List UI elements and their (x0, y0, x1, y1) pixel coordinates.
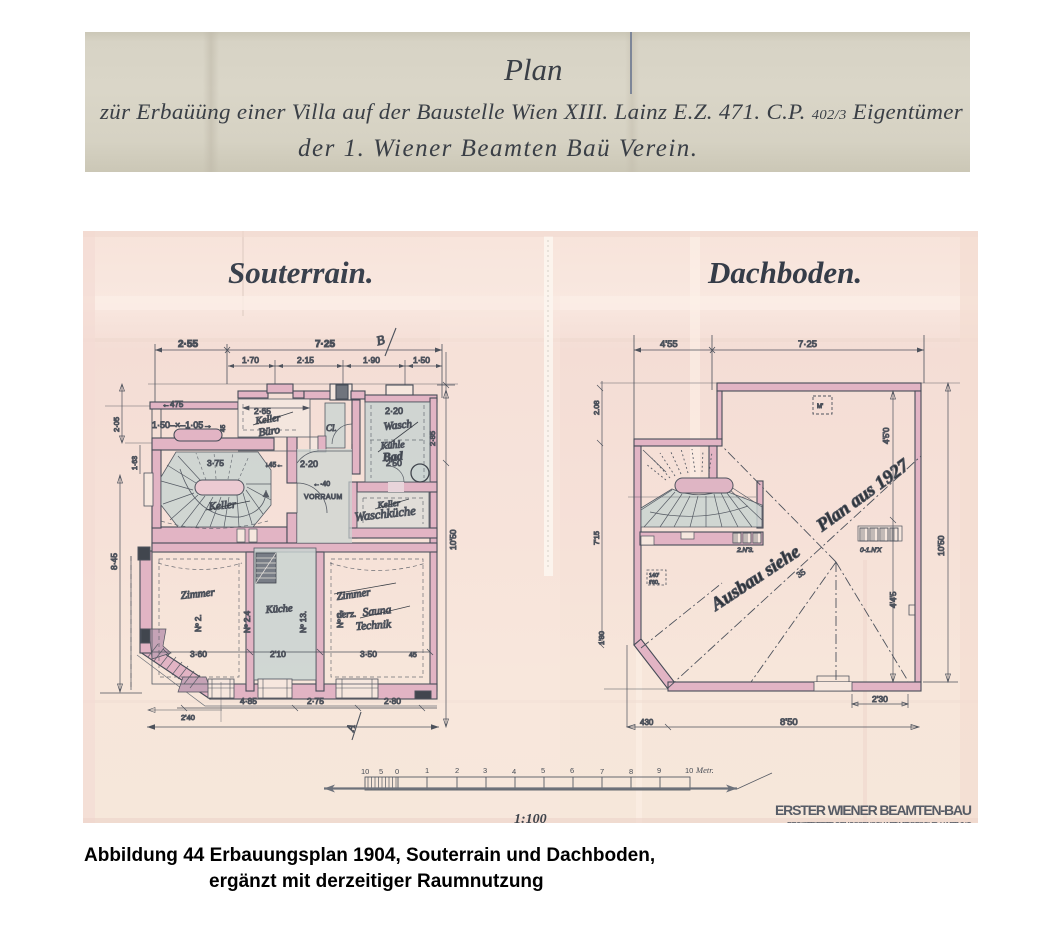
svg-text:Nº 13.: Nº 13. (299, 611, 308, 633)
svg-text:Nº 2.: Nº 2. (194, 614, 203, 632)
svg-text:1:100: 1:100 (514, 812, 547, 823)
svg-text:ℓ'60.: ℓ'60. (649, 580, 660, 586)
svg-text:1·63: 1·63 (132, 456, 139, 470)
svg-text:Souterrain.: Souterrain. (228, 255, 374, 290)
svg-text:3·75: 3·75 (207, 458, 224, 468)
svg-text:6: 6 (570, 766, 574, 775)
svg-text:↓45←: ↓45← (265, 462, 283, 469)
svg-text:4'55: 4'55 (660, 339, 678, 350)
svg-text:8: 8 (629, 767, 633, 776)
svg-text:Technik: Technik (355, 618, 392, 632)
svg-text:4'5'0: 4'5'0 (882, 427, 891, 444)
svg-text:10: 10 (685, 766, 693, 775)
svg-text:45: 45 (220, 424, 227, 432)
svg-text:3·60: 3·60 (190, 649, 207, 659)
svg-text:Keller: Keller (207, 499, 237, 514)
svg-text:Dachboden.: Dachboden. (707, 255, 862, 290)
svg-text:2.N'3.: 2.N'3. (736, 547, 754, 554)
svg-text:4'4'5: 4'4'5 (889, 591, 898, 608)
svg-text:1·90: 1·90 (363, 355, 380, 365)
svg-text:5: 5 (541, 766, 545, 775)
svg-text:7'15: 7'15 (592, 531, 601, 545)
svg-text:2.08: 2.08 (592, 400, 601, 415)
svg-text:3: 3 (483, 766, 487, 775)
svg-text:M': M' (817, 404, 823, 410)
svg-text:45: 45 (409, 652, 417, 659)
svg-text:1·50: 1·50 (413, 355, 430, 365)
svg-text:7·25: 7·25 (315, 339, 335, 350)
svg-text:ERSTER WIENER BEAMTEN-BAU: ERSTER WIENER BEAMTEN-BAU (775, 802, 972, 818)
svg-text:1·50–×–1·05→: 1·50–×–1·05→ (152, 420, 212, 430)
svg-text:9: 9 (657, 766, 661, 775)
svg-text:2·20: 2·20 (385, 406, 403, 416)
svg-text:430: 430 (640, 718, 654, 727)
svg-text:8·45: 8·45 (109, 553, 119, 570)
svg-text:140': 140' (649, 573, 659, 579)
svg-text:10: 10 (361, 767, 369, 776)
svg-text:4·85: 4·85 (240, 696, 257, 706)
svg-text:3·50: 3·50 (360, 649, 377, 659)
svg-text:Küche: Küche (264, 603, 293, 616)
svg-text:2·55: 2·55 (178, 339, 198, 350)
svg-text:VORRAUM: VORRAUM (304, 494, 343, 501)
svg-text:4: 4 (512, 767, 516, 776)
svg-text:2·20: 2·20 (300, 459, 318, 469)
svg-text:0: 0 (395, 767, 399, 776)
svg-text:derz.: derz. (336, 609, 356, 621)
svg-text:2: 2 (455, 766, 459, 775)
svg-text:5: 5 (379, 767, 383, 776)
svg-text:2·80: 2·80 (384, 696, 401, 706)
svg-text:2·75: 2·75 (307, 696, 324, 706)
svg-text:2·05: 2·05 (112, 417, 121, 432)
svg-text:0-1.N'X: 0-1.N'X (860, 547, 882, 554)
svg-text:Metr.: Metr. (695, 765, 714, 775)
svg-text:←475: ←475 (162, 400, 184, 409)
svg-text:Nº 2.4: Nº 2.4 (243, 610, 252, 633)
svg-text:1'80: 1'80 (597, 631, 606, 645)
svg-text:2'30: 2'30 (872, 694, 888, 704)
svg-text:1: 1 (425, 766, 429, 775)
svg-text:10'50: 10'50 (936, 535, 946, 556)
svg-text:8'50: 8'50 (780, 717, 798, 728)
svg-text:2·85: 2·85 (428, 431, 437, 446)
svg-text:REGISTRIERTE GENOSSENSCHAFT MI: REGISTRIERTE GENOSSENSCHAFT MIT BESCHR. … (787, 820, 972, 823)
svg-text:1·70: 1·70 (242, 355, 259, 365)
svg-text:10'50: 10'50 (448, 529, 458, 550)
svg-text:2'10: 2'10 (270, 649, 286, 659)
svg-text:Cl.: Cl. (326, 423, 337, 433)
svg-text:←·40: ←·40 (313, 481, 330, 488)
svg-text:7·25: 7·25 (798, 339, 817, 350)
svg-text:2'40: 2'40 (181, 713, 195, 722)
svg-text:7: 7 (600, 767, 604, 776)
svg-text:2·15: 2·15 (297, 355, 314, 365)
svg-text:Bad: Bad (381, 449, 404, 465)
